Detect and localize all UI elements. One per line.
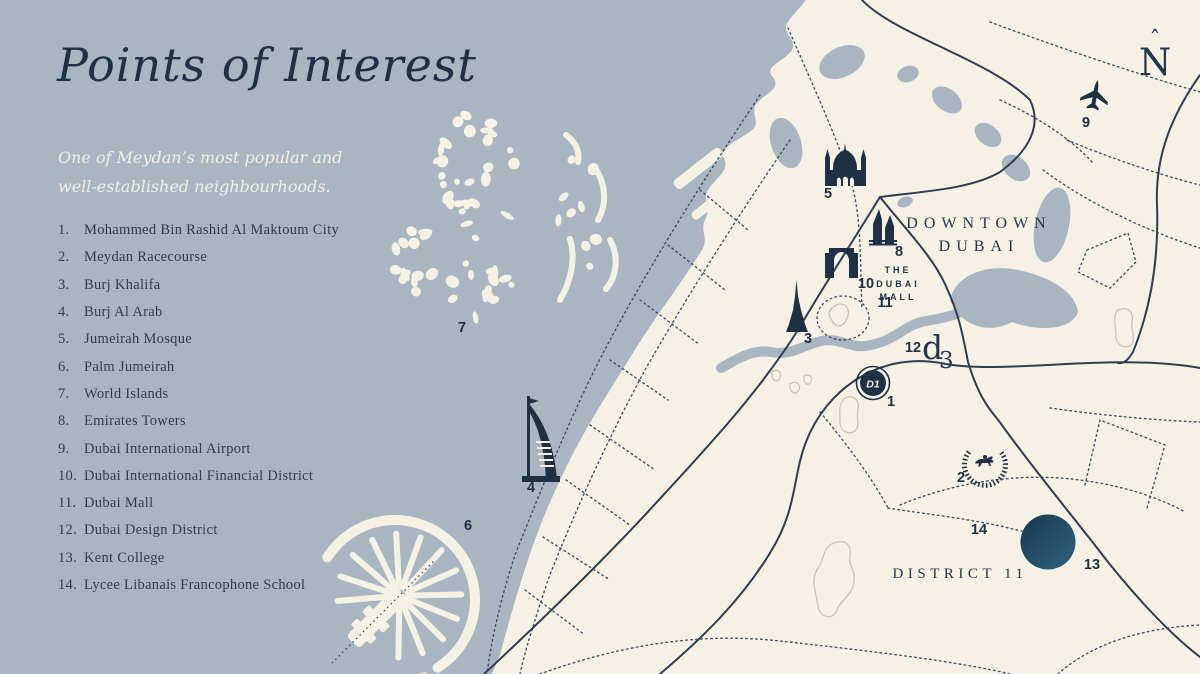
- map-marker-12: 12: [905, 340, 921, 356]
- map-marker-10: 10: [858, 276, 874, 292]
- map-marker-13: 13: [1084, 557, 1100, 573]
- map-marker-2: 2: [957, 470, 965, 486]
- dubai-map: D1 d 3 1234567891011121314: [0, 0, 1200, 674]
- site-circle: [1021, 515, 1076, 570]
- map-marker-7: 7: [458, 320, 466, 336]
- map-marker-5: 5: [824, 186, 832, 202]
- map-marker-1: 1: [887, 394, 895, 410]
- map-marker-11: 11: [877, 295, 892, 311]
- map-marker-6: 6: [464, 518, 472, 534]
- map-marker-14: 14: [971, 522, 987, 538]
- district-one-logo: D1: [857, 367, 890, 400]
- map-marker-8: 8: [895, 244, 903, 260]
- poster-map: D1 d 3 1234567891011121314 Points of Int…: [0, 0, 1200, 674]
- map-marker-9: 9: [1082, 115, 1090, 131]
- map-marker-3: 3: [804, 331, 812, 347]
- map-marker-4: 4: [527, 480, 535, 496]
- svg-text:3: 3: [939, 348, 954, 374]
- svg-text:D1: D1: [866, 379, 880, 391]
